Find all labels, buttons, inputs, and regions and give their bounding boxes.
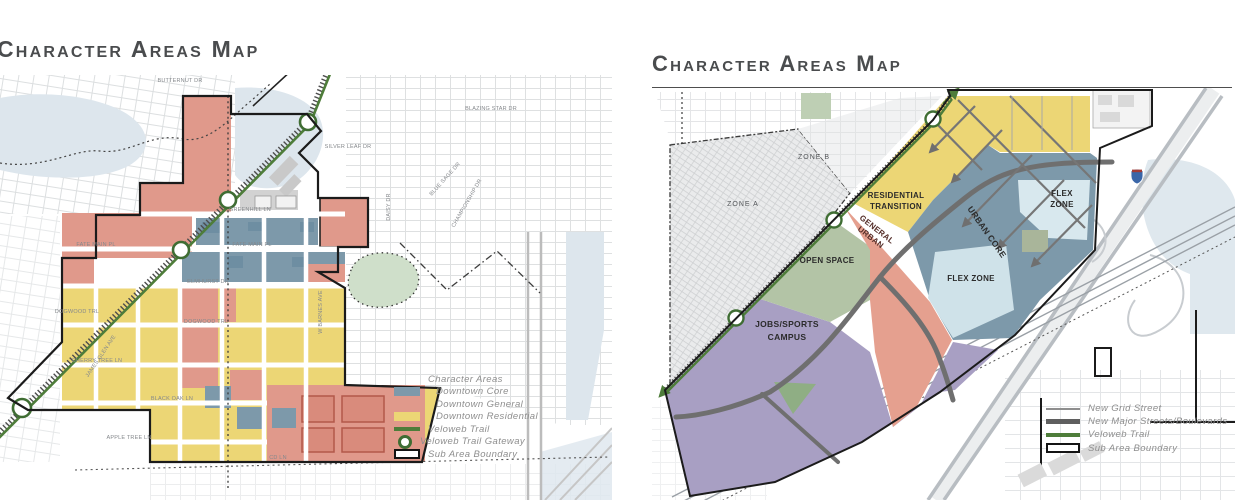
street-label-dogwood-e: DOGWOOD TRL bbox=[184, 319, 228, 325]
boundary-box-icon bbox=[394, 449, 420, 459]
legend-header: Character Areas bbox=[428, 373, 564, 386]
legend-item-sub-area-boundary-right: Sub Area Boundary bbox=[1046, 442, 1235, 455]
page: Character Areas Map bbox=[0, 0, 1235, 500]
legend-item-downtown-core: Downtown Core bbox=[394, 386, 564, 399]
legend-item-new-major-streets: New Major Streets/Boulevards bbox=[1046, 415, 1235, 428]
legend-item-trail-gateway: Veloweb Trail Gateway bbox=[394, 436, 564, 449]
label-flex-zone-right-1: FLEX bbox=[1051, 189, 1073, 198]
label-flex-zone-center: FLEX ZONE bbox=[947, 274, 995, 283]
label-open-space: OPEN SPACE bbox=[800, 256, 855, 265]
trail-line-icon bbox=[394, 427, 420, 431]
right-map-title: Character Areas Map bbox=[652, 51, 902, 77]
street-label-elmhurst: ELMHURST DR bbox=[187, 279, 229, 285]
street-label-dogwood-w: DOGWOOD TRL bbox=[55, 309, 99, 315]
legend-item-new-grid-street: New Grid Street bbox=[1046, 402, 1235, 415]
boundary-box-icon-right bbox=[1046, 443, 1080, 453]
existing-block-topright bbox=[1093, 90, 1150, 128]
zone-b-label: ZONE B bbox=[798, 154, 830, 161]
street-label-greenhill: GREENHILL LN bbox=[229, 207, 271, 213]
interstate-shield-icon bbox=[1131, 169, 1143, 184]
thick-line-icon bbox=[1046, 419, 1080, 424]
label-residential-transition-2: TRANSITION bbox=[870, 202, 922, 211]
street-label-barnes: W BARNES AVE bbox=[318, 290, 324, 334]
downtown-general-swatch bbox=[394, 400, 420, 409]
street-label-silver-leaf: SILVER LEAF DR bbox=[325, 144, 372, 150]
legend-item-downtown-general: Downtown General bbox=[394, 398, 564, 411]
right-map-legend: New Grid Street New Major Streets/Boulev… bbox=[1046, 402, 1235, 455]
legend-item-veloweb-trail-right: Veloweb Trail bbox=[1046, 428, 1235, 441]
left-map-title: Character Areas Map bbox=[0, 36, 260, 63]
street-label-black-oak: BLACK OAK LN bbox=[151, 396, 193, 402]
legend-item-boundary: Sub Area Boundary bbox=[394, 448, 564, 461]
green-line-icon bbox=[1046, 433, 1080, 437]
street-label-apple-tree: APPLE TREE LN bbox=[107, 435, 152, 441]
label-flex-zone-right-2: ZONE bbox=[1050, 200, 1074, 209]
street-label-butternut: BUTTERNUT DR bbox=[157, 78, 202, 84]
street-label-fate-main-e: FATE MAIN PL bbox=[232, 242, 271, 248]
street-label-cd-ln: CD LN bbox=[269, 455, 287, 461]
downtown-residential-swatch bbox=[394, 412, 420, 421]
legend-item-downtown-residential: Downtown Residential bbox=[394, 411, 564, 424]
label-residential-transition-1: RESIDENTIAL bbox=[868, 191, 925, 200]
thin-line-icon bbox=[1046, 408, 1080, 410]
legend-item-veloweb-trail: Veloweb Trail bbox=[394, 423, 564, 436]
street-label-blazing-star: BLAZING STAR DR bbox=[465, 106, 517, 112]
downtown-core-swatch bbox=[394, 387, 420, 396]
zone-olive-block bbox=[1022, 230, 1048, 252]
label-jobs-sports-2: CAMPUS bbox=[768, 332, 807, 342]
zone-a-label: ZONE A bbox=[727, 201, 759, 208]
label-jobs-sports-1: JOBS/SPORTS bbox=[755, 319, 819, 329]
street-label-fate-main-w: FATE MAIN PL bbox=[76, 242, 115, 248]
left-map-legend: Character Areas Downtown Core Downtown G… bbox=[394, 373, 564, 461]
park-topleft bbox=[801, 93, 831, 119]
gateway-ring-icon bbox=[398, 435, 412, 449]
street-label-daisy: DAISY DR bbox=[386, 193, 392, 220]
